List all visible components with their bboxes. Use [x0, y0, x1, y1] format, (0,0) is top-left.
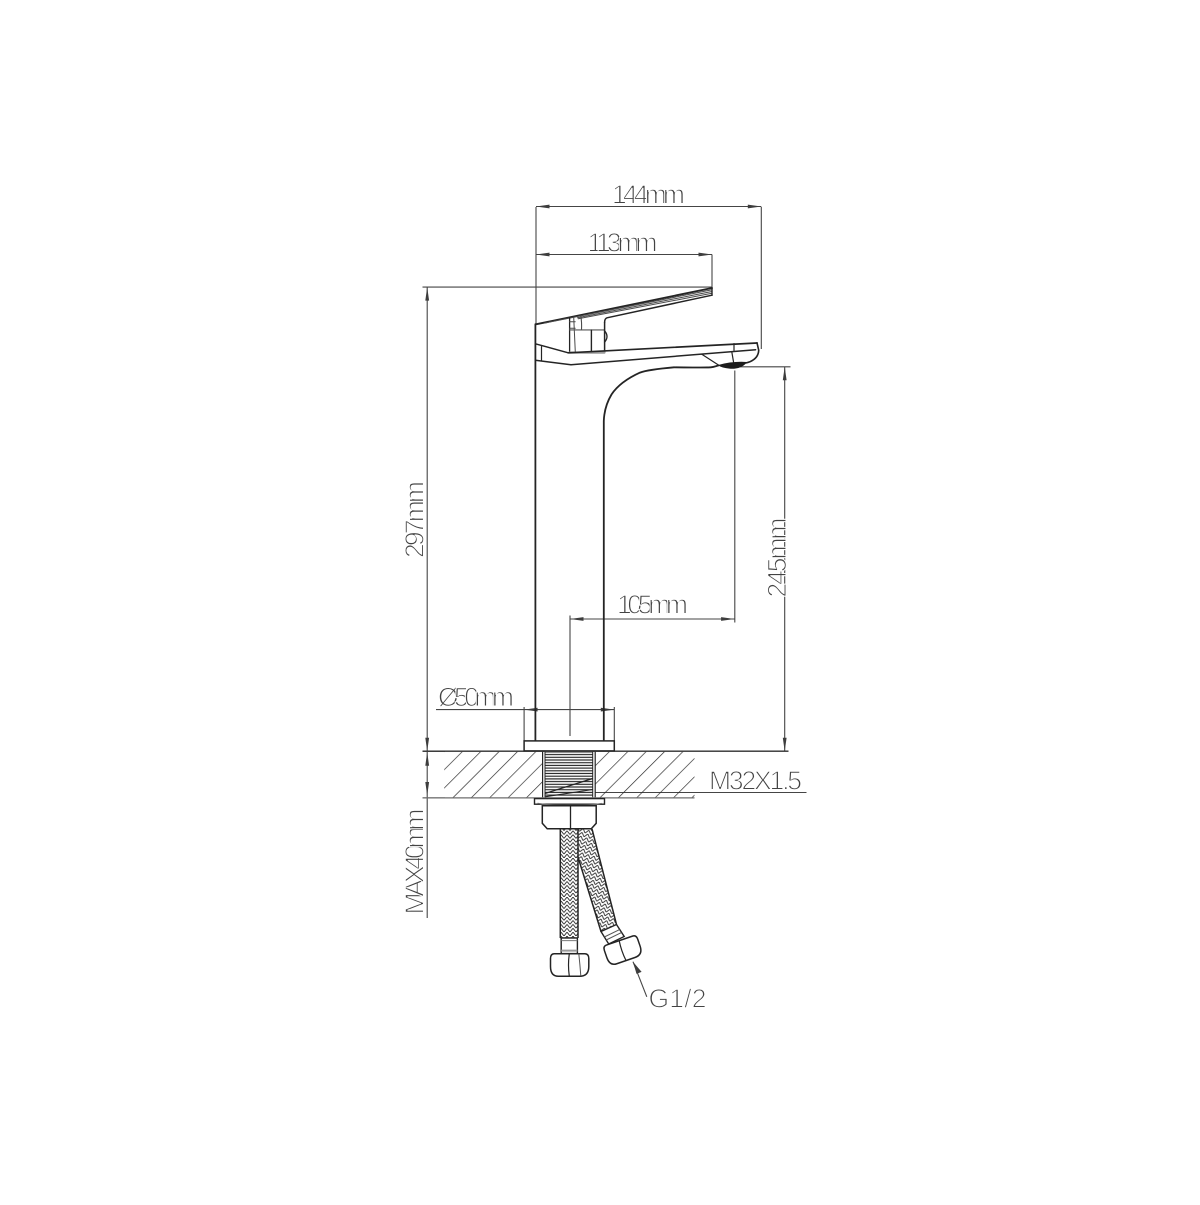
- svg-text:Ø50mm: Ø50mm: [438, 682, 514, 712]
- svg-text:M32X1.5: M32X1.5: [709, 766, 802, 796]
- svg-text:113mm: 113mm: [588, 228, 658, 258]
- svg-text:105mm: 105mm: [617, 590, 688, 620]
- svg-text:MAX40mm: MAX40mm: [400, 809, 430, 915]
- svg-text:297mm: 297mm: [400, 481, 430, 558]
- svg-text:245mm: 245mm: [762, 518, 792, 598]
- svg-text:G1/2: G1/2: [649, 984, 707, 1014]
- svg-text:144mm: 144mm: [612, 180, 685, 210]
